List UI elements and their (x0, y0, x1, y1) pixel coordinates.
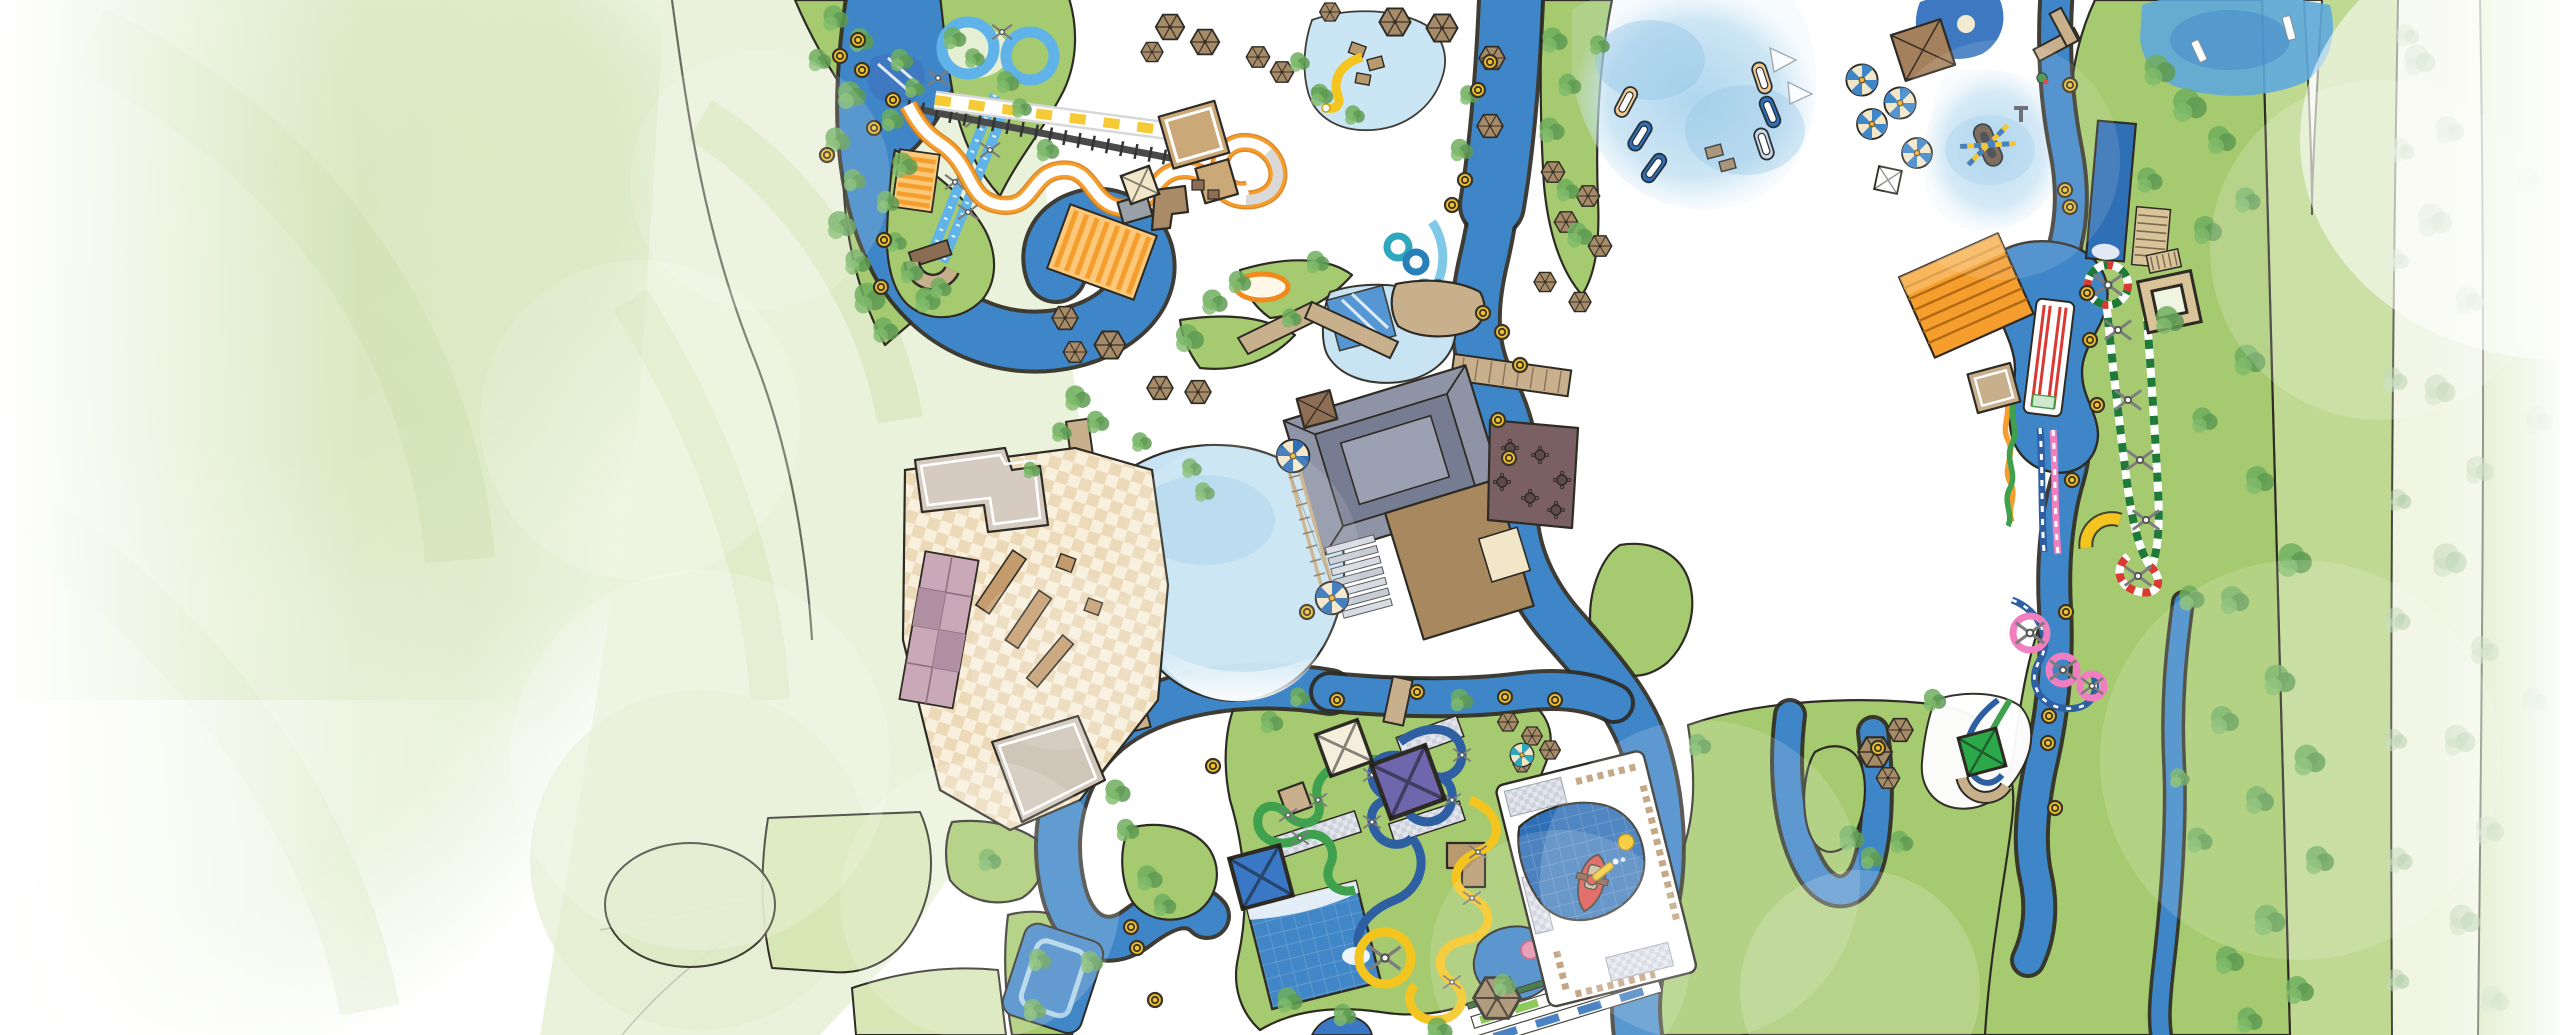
green-canopy (1958, 728, 2006, 776)
blue-canopy (1229, 845, 1293, 909)
water-park-map (0, 0, 2560, 1035)
bottomleft-fade (0, 700, 560, 1035)
restaurant-terrace (1488, 420, 1578, 528)
pool-float (1957, 15, 1975, 33)
spiral-slide (1387, 222, 1443, 289)
tube-slide-complex (892, 22, 1278, 300)
restaurant-building (1392, 281, 1485, 337)
map-canvas (0, 0, 2560, 1035)
